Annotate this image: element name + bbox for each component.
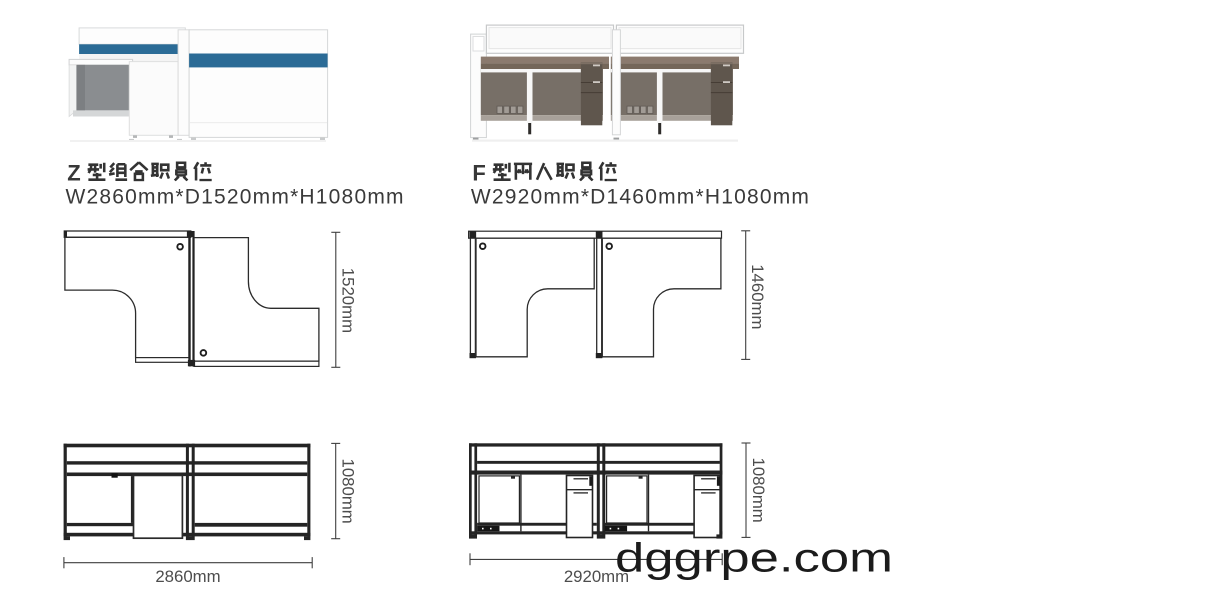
svg-text:dggrpe.com: dggrpe.com bbox=[615, 534, 893, 580]
svg-text:1520mm: 1520mm bbox=[338, 268, 357, 333]
svg-text:Z: Z bbox=[67, 161, 80, 186]
svg-text:1460mm: 1460mm bbox=[748, 264, 767, 329]
svg-text:2860mm: 2860mm bbox=[155, 567, 220, 586]
svg-text:1080mm: 1080mm bbox=[749, 458, 768, 523]
svg-text:1080mm: 1080mm bbox=[339, 459, 358, 524]
svg-text:W2860mm*D1520mm*H1080mm: W2860mm*D1520mm*H1080mm bbox=[66, 186, 405, 209]
svg-text:W2920mm*D1460mm*H1080mm: W2920mm*D1460mm*H1080mm bbox=[471, 186, 810, 209]
svg-text:F: F bbox=[472, 161, 485, 186]
